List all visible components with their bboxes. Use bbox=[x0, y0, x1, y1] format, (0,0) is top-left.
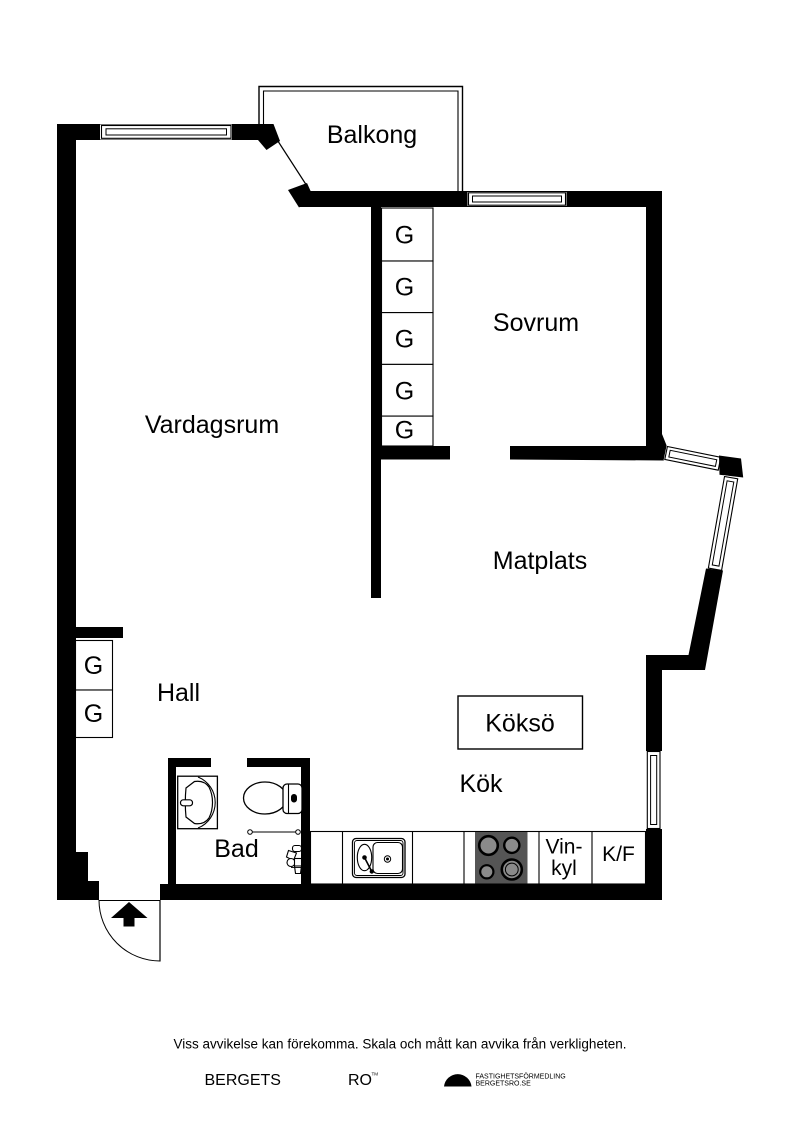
svg-text:Hall: Hall bbox=[157, 679, 200, 707]
svg-text:kyl: kyl bbox=[551, 857, 577, 880]
svg-text:Vardagsrum: Vardagsrum bbox=[145, 411, 279, 439]
svg-text:G: G bbox=[395, 222, 414, 250]
svg-text:TM: TM bbox=[372, 1072, 379, 1077]
svg-text:RO: RO bbox=[348, 1072, 372, 1089]
svg-text:BERGETSRO.SE: BERGETSRO.SE bbox=[476, 1081, 532, 1088]
svg-text:G: G bbox=[395, 274, 414, 302]
svg-text:Kök: Kök bbox=[459, 770, 503, 798]
svg-text:G: G bbox=[395, 378, 414, 406]
svg-text:K/F: K/F bbox=[602, 843, 635, 866]
svg-text:Bad: Bad bbox=[214, 835, 258, 863]
svg-text:FASTIGHETSFÖRMEDLING: FASTIGHETSFÖRMEDLING bbox=[476, 1073, 566, 1081]
svg-text:Balkong: Balkong bbox=[327, 121, 417, 149]
svg-text:Köksö: Köksö bbox=[485, 710, 554, 738]
svg-text:Matplats: Matplats bbox=[493, 547, 587, 575]
svg-text:G: G bbox=[395, 326, 414, 354]
svg-text:BERGETS: BERGETS bbox=[205, 1072, 281, 1089]
svg-text:Viss avvikelse kan förekomma.: Viss avvikelse kan förekomma. Skala och … bbox=[174, 1037, 627, 1052]
svg-text:Vin-: Vin- bbox=[546, 836, 583, 859]
svg-text:G: G bbox=[84, 700, 103, 728]
svg-text:Sovrum: Sovrum bbox=[493, 309, 579, 337]
svg-text:G: G bbox=[395, 417, 414, 445]
svg-text:G: G bbox=[84, 652, 103, 680]
